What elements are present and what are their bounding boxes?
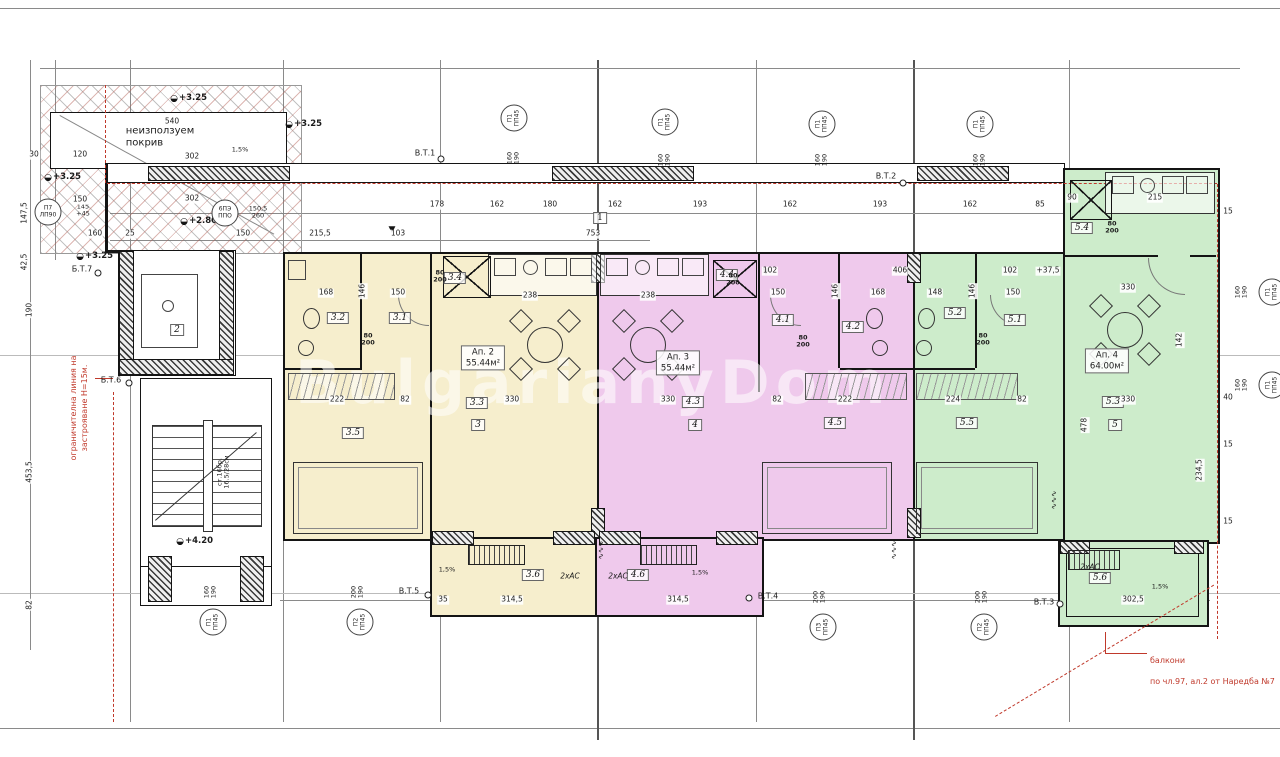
kitchen-sink: [1112, 176, 1134, 194]
room-label-3-5: 3.5: [342, 427, 364, 439]
dim-label: 330: [1120, 396, 1136, 405]
shaft-size-label: 80 200: [433, 270, 447, 285]
elevator-wall: [119, 251, 134, 375]
duct-dim: 150,5 260: [249, 206, 268, 221]
marker-vt5: В.Т.5: [399, 586, 420, 595]
duct-dim: 200 190: [351, 586, 366, 598]
dim-label: 82: [1016, 396, 1028, 405]
balcony-pier: [553, 531, 595, 545]
dim-label: 314,5: [666, 596, 689, 605]
marker-vt1: В.Т.1: [415, 148, 436, 157]
slope-label: 1,5%: [692, 569, 709, 576]
dim-label: 82: [771, 396, 783, 405]
benchmark-icon: ◒: [170, 94, 178, 104]
dim-label: 238: [522, 292, 538, 301]
dim-label: 540: [164, 118, 180, 127]
elevator-room-label: 2: [170, 324, 184, 336]
shaft-size-label: 80 200: [361, 333, 375, 348]
frame-top-line: [0, 8, 1280, 9]
dim-label: 168: [318, 289, 334, 298]
elevation-325: +3.25: [53, 173, 81, 183]
dim-label: 103: [390, 230, 406, 239]
room-label-4: 4: [688, 419, 702, 431]
duct-label-p3: П3 ПП45: [810, 614, 837, 641]
dim-label: 330: [1120, 284, 1136, 293]
partition: [1063, 255, 1158, 257]
shaft-size-label: 80 200: [1105, 221, 1119, 236]
ac-label: 2хАС: [1080, 564, 1100, 573]
dim-label: 162: [607, 201, 623, 210]
ac-label: 2хАС: [608, 573, 628, 582]
apartment-4-name: Ап. 4: [1096, 350, 1118, 360]
roof-label: неизползуем покрив: [126, 126, 195, 149]
dim-line: [40, 68, 1240, 69]
dim-label: 40: [1222, 394, 1234, 403]
toilet: [918, 308, 935, 329]
dim-label: 453,5: [26, 460, 35, 483]
marker-bt7-dot: [95, 270, 102, 277]
duct-dim: 160 190: [815, 154, 830, 166]
duct-label-p1: П1 ПП45: [967, 111, 994, 138]
marker-vt4: В.Т.4: [758, 591, 779, 600]
marker-vt5-dot: [425, 592, 432, 599]
dim-label: 238: [640, 292, 656, 301]
dim-label: 234,5: [1196, 458, 1205, 481]
room-label-5-2: 5.2: [944, 307, 966, 319]
duct-dim: 160 190: [204, 586, 219, 598]
duct-label-p2: П2 ПП45: [347, 609, 374, 636]
stove-burner: [1140, 178, 1155, 193]
radiator: [468, 545, 525, 565]
dim-label: 120: [72, 151, 88, 160]
duct-label-p1: П1 ПП45: [652, 109, 679, 136]
dim-label: 146: [969, 283, 978, 299]
limit-note: ограничителна линия на застрояване Н=15м…: [69, 328, 91, 488]
duct-label-p7: П7 ЛП90: [35, 199, 62, 226]
dim-label: 82: [26, 599, 35, 611]
duct-label-p1: П1 ПП45: [200, 609, 227, 636]
dim-label: 35: [437, 596, 449, 605]
duct-label-bpe: 6ПЭ ППО: [212, 200, 239, 227]
red-limit-line: [1217, 184, 1218, 639]
elevation-325: +3.25: [294, 120, 322, 130]
room-label-4-6: 4.6: [627, 569, 649, 581]
benchmark-icon: ◒: [44, 173, 52, 183]
facade-pier: [552, 166, 694, 181]
dining-table: [527, 327, 563, 363]
stove-burner: [523, 260, 538, 275]
dim-label: 753: [585, 230, 601, 239]
dim-label: 147,5: [21, 201, 30, 224]
marker-vt1-dot: [438, 156, 445, 163]
duct-label-p1: П1 ПП45: [501, 105, 528, 132]
partition: [913, 368, 975, 370]
bed: [293, 462, 423, 534]
room-label-3-1: 3.1: [389, 312, 411, 324]
radiator-icon: ∿∿∿: [1049, 491, 1058, 510]
balcony-note-leader: [1105, 653, 1147, 654]
benchmark-icon: ◒: [176, 537, 184, 547]
dim-label: 15: [1222, 518, 1234, 527]
dim-label: 85: [1034, 201, 1046, 210]
wardrobe: [805, 373, 907, 400]
marker-bt7: Б.Т.7: [72, 264, 93, 273]
apartment-2-label: Ап. 2 55.44м²: [461, 345, 505, 370]
benchmark-icon: ◒: [285, 120, 293, 130]
toilet: [866, 308, 883, 329]
dim-label: 314,5: [500, 596, 523, 605]
marker-vt2-dot: [900, 180, 907, 187]
elevator-car-dot: [162, 300, 174, 312]
apartment-3-area: 55.44м²: [661, 363, 695, 373]
dim-label: 302: [184, 153, 200, 162]
dim-label: 302,5: [1121, 596, 1144, 605]
marker-vt3-dot: [1057, 601, 1064, 608]
kitchen-appliance: [1186, 176, 1208, 194]
balcony-note-leader: [1105, 632, 1106, 654]
kitchen-appliance: [1162, 176, 1184, 194]
partition: [1190, 255, 1216, 257]
marker-vt2: В.Т.2: [876, 171, 897, 180]
dim-label: 168: [870, 289, 886, 298]
dim-label: 478: [1081, 417, 1090, 433]
dim-label: 190: [26, 302, 35, 318]
sink: [298, 340, 314, 356]
dim-label: 150: [72, 196, 88, 205]
room-label-4-1: 4.1: [772, 314, 794, 326]
elevation-325: +3.25: [179, 94, 207, 104]
apartment-3-name: Ап. 3: [667, 352, 689, 362]
grid-axis-label: 1: [593, 212, 607, 224]
dim-label: 15: [1222, 441, 1234, 450]
dim-label: 215,5: [308, 230, 331, 239]
dim-label: 150: [770, 289, 786, 298]
duct-label-p1: П1 ПП45: [1259, 372, 1280, 399]
duct-label-p2: П2 ПП45: [971, 614, 998, 641]
kitchen-sink: [606, 258, 628, 276]
duct-dim: 160 190: [973, 154, 988, 166]
porch-pier: [148, 556, 172, 602]
dim-label: 330: [504, 396, 520, 405]
dim-label: 162: [489, 201, 505, 210]
duct-dim: 200 190: [975, 591, 990, 603]
dim-label: 224: [945, 396, 961, 405]
sink: [872, 340, 888, 356]
room-label-3-2: 3.2: [327, 312, 349, 324]
shaft-size-label: 80 200: [976, 333, 990, 348]
radiator-icon: ∿∿∿: [596, 541, 605, 560]
room-label-4-3: 4.3: [682, 396, 704, 408]
dim-label: 146: [359, 283, 368, 299]
slope-label: 1,5%: [1152, 583, 1169, 590]
elevator-wall: [119, 359, 234, 375]
benchmark-icon: ◒: [76, 252, 84, 262]
dim-label: 178: [429, 201, 445, 210]
shaft-size-label: 80 200: [796, 335, 810, 350]
wardrobe: [916, 373, 1018, 400]
marker-bt6-dot: [126, 380, 133, 387]
facade-pier: [917, 166, 1009, 181]
dim-label: 102: [1002, 267, 1018, 276]
washing-machine: [288, 260, 306, 280]
slope-label: 1,5%: [232, 146, 249, 153]
dim-label: 90: [1066, 194, 1078, 203]
red-limit-line: [107, 183, 1217, 184]
room-label-5-5: 5.5: [956, 417, 978, 429]
dim-label: 193: [692, 201, 708, 210]
radiator-icon: ∿∿∿: [889, 541, 898, 560]
balcony-note-line2: по чл.97, ал.2 от Наредба №7: [1150, 677, 1275, 686]
room-label-3-3: 3.3: [466, 397, 488, 409]
stairs-note: ст.16бр. 16.5/28см: [217, 455, 232, 488]
dim-line: [30, 60, 31, 650]
dim-label: 146: [832, 283, 841, 299]
kitchen-appliance: [570, 258, 592, 276]
dim-label: 162: [962, 201, 978, 210]
marker-bt6: Б.Т.6: [101, 375, 122, 384]
kitchen-appliance: [682, 258, 704, 276]
dim-label: 142: [1176, 332, 1185, 348]
room-label-5-4: 5.4: [1071, 222, 1093, 234]
dim-label: 150: [235, 230, 251, 239]
duct-label-p1: П1 ПП45: [1259, 279, 1280, 306]
porch-pier: [240, 556, 264, 602]
duct-dim: 145 +45: [76, 204, 90, 219]
marker-vt4-dot: [746, 595, 753, 602]
elevation-325: +3.25: [85, 252, 113, 262]
dim-label: 215: [1147, 194, 1163, 203]
balcony-note-line1: балкони: [1150, 656, 1185, 665]
dim-label: 406: [892, 267, 908, 276]
dim-label: 180: [542, 201, 558, 210]
dim-label: 30: [28, 151, 40, 160]
duct-dim: 160 190: [1235, 286, 1250, 298]
room-label-5-6: 5.6: [1089, 572, 1111, 584]
apartment-4-area: 64.00м²: [1090, 361, 1124, 371]
duct-dim: 160 190: [507, 152, 522, 164]
balcony-note: балкони по чл.97, ал.2 от Наредба №7: [1150, 645, 1278, 688]
dim-label: 102: [762, 267, 778, 276]
room-label-5-1: 5.1: [1004, 314, 1026, 326]
red-limit-line: [105, 85, 106, 183]
radiator: [640, 545, 697, 565]
duct-label-p1: П1 ПП45: [809, 111, 836, 138]
dim-label: 160: [87, 230, 103, 239]
wall-pier: [907, 253, 921, 283]
balcony-pier: [432, 531, 474, 545]
dim-label: 15: [1222, 208, 1234, 217]
room-label-5: 5: [1108, 419, 1122, 431]
duct-dim: 160 190: [658, 154, 673, 166]
dim-label: 330: [660, 396, 676, 405]
dim-label: 222: [329, 396, 345, 405]
ac-label: 2хАС: [560, 573, 580, 582]
dim-label: 302: [184, 195, 200, 204]
dim-label: 82: [399, 396, 411, 405]
sink: [916, 340, 932, 356]
kitchen-sink: [494, 258, 516, 276]
apartment-2-area: 55.44м²: [466, 358, 500, 368]
room-label-4-5: 4.5: [824, 417, 846, 429]
kitchen-appliance: [657, 258, 679, 276]
balcony-pier: [716, 531, 758, 545]
facade-pier: [148, 166, 290, 181]
toilet: [303, 308, 320, 329]
dim-label: 148: [927, 289, 943, 298]
benchmark-icon: ◒: [180, 217, 188, 227]
dim-label: 42,5: [21, 253, 30, 272]
room-label-4-2: 4.2: [842, 321, 864, 333]
elevation-420: +4.20: [185, 537, 213, 547]
duct-dim: 160 190: [1235, 379, 1250, 391]
dim-label: 222: [837, 396, 853, 405]
bed: [916, 462, 1038, 534]
frame-bottom-line: [0, 728, 1280, 729]
duct-dim: 200 190: [813, 591, 828, 603]
bed: [762, 462, 892, 534]
dining-table: [1107, 312, 1143, 348]
dim-label: 162: [782, 201, 798, 210]
kitchen-appliance: [545, 258, 567, 276]
slope-label: 1,5%: [439, 566, 456, 573]
dim-label: 193: [872, 201, 888, 210]
shaft-size-label: 80 200: [726, 273, 740, 288]
room-label-3-6: 3.6: [522, 569, 544, 581]
dim-label: 150: [1005, 289, 1021, 298]
dim-label: 25: [124, 230, 136, 239]
marker-vt3: В.Т.3: [1034, 597, 1055, 606]
apartment-4-label: Ап. 4 64.00м²: [1085, 348, 1129, 373]
room-label-3: 3: [471, 419, 485, 431]
dim-label: 150: [390, 289, 406, 298]
apartment-2-name: Ап. 2: [472, 347, 494, 357]
elevator-wall: [219, 251, 234, 375]
red-limit-line: [113, 392, 114, 722]
apartment-3-label: Ап. 3 55.44м²: [656, 350, 700, 375]
floor-plan-canvas: неизползуем покрив ст.16бр. 16.5/28см: [0, 0, 1280, 757]
partition: [975, 252, 977, 368]
stove-burner: [635, 260, 650, 275]
dim-label: +37,5: [1036, 267, 1061, 276]
balcony-pier: [1174, 541, 1204, 554]
